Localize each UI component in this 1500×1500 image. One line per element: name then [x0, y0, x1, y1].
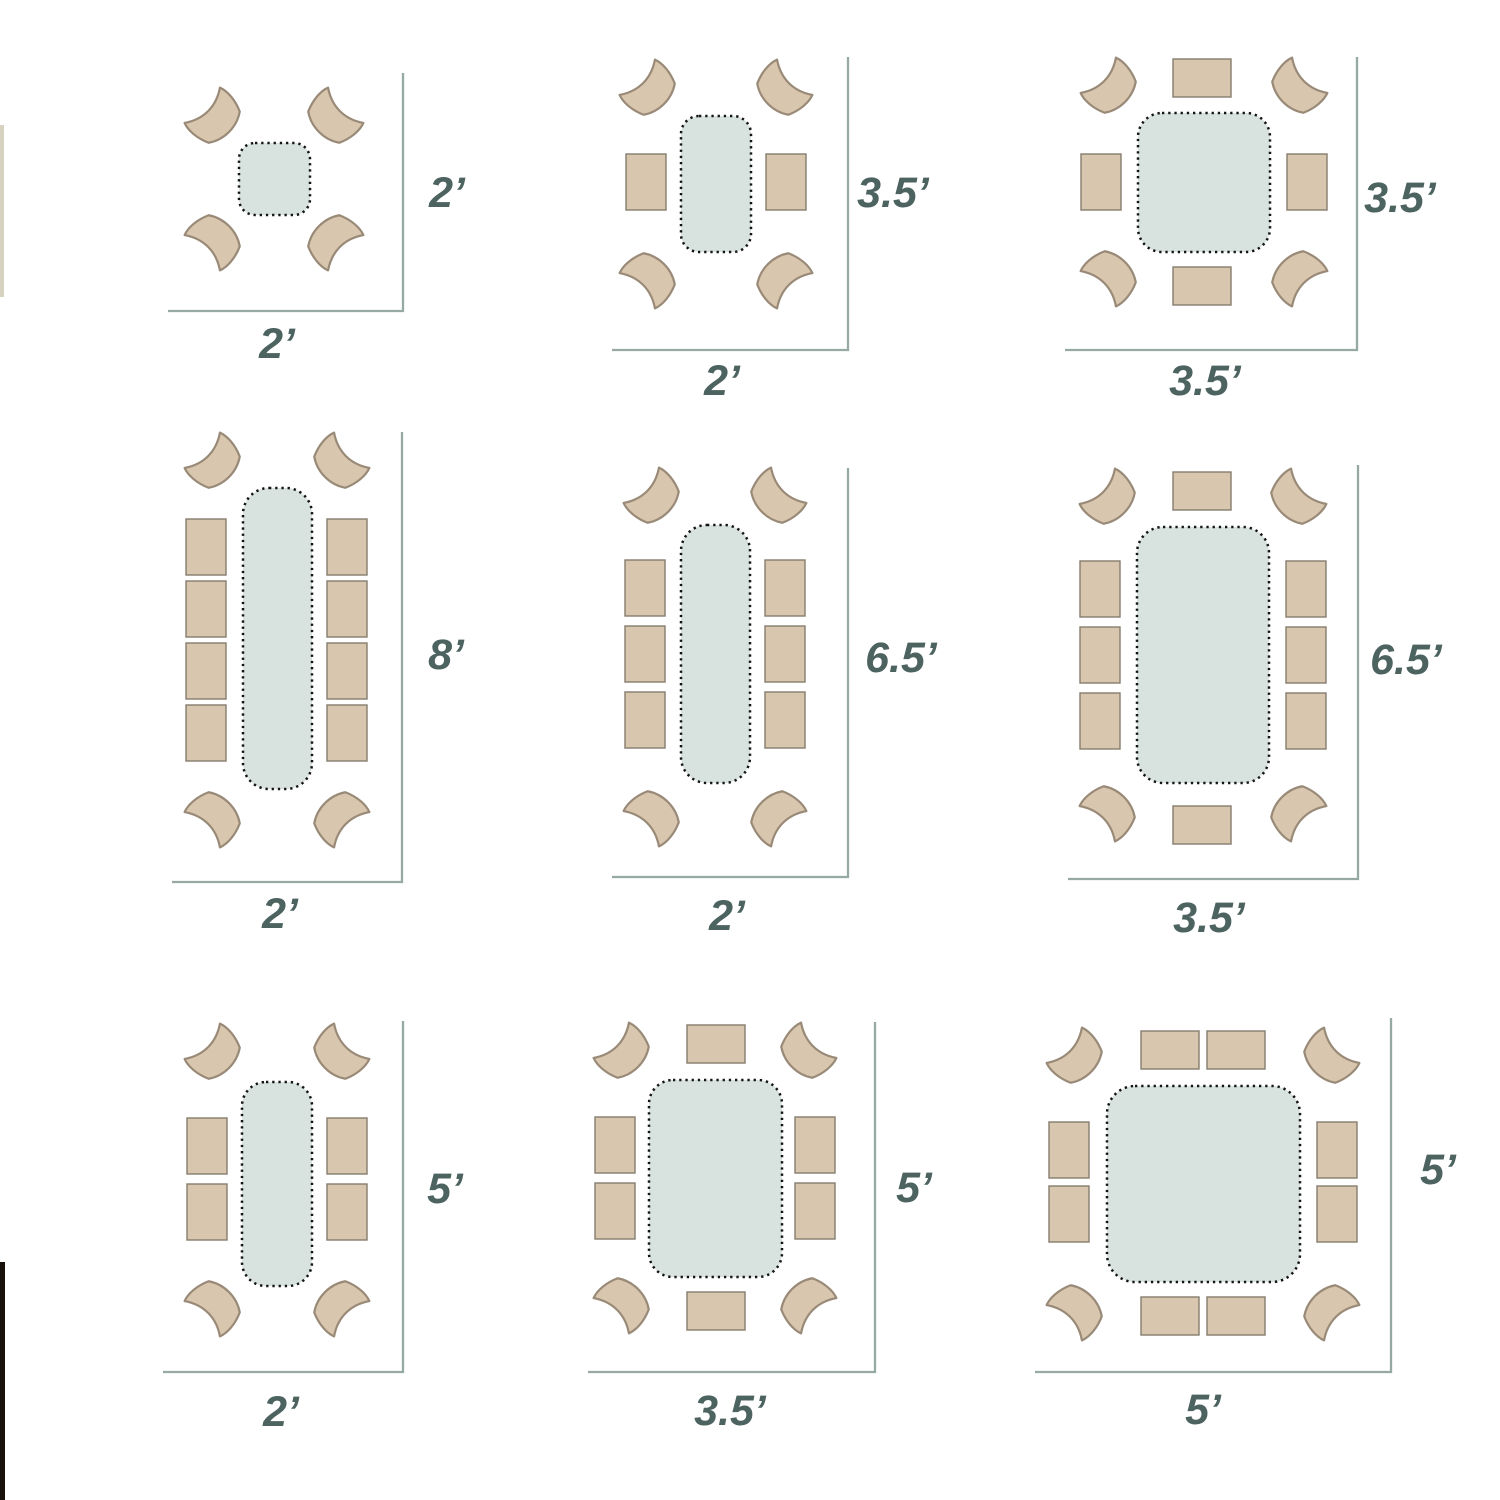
side-chair — [1317, 1186, 1357, 1242]
side-chair — [595, 1117, 635, 1173]
table — [1137, 527, 1269, 783]
corner-chair — [622, 783, 686, 847]
corner-chair — [1079, 243, 1143, 307]
side-chair — [625, 626, 665, 682]
width-label: 2’ — [708, 892, 746, 940]
corner-chair — [183, 1273, 247, 1337]
side-chair — [1317, 1122, 1357, 1178]
corner-chair — [749, 245, 813, 309]
side-chair — [1173, 59, 1231, 97]
corner-chair — [1045, 1277, 1109, 1341]
table — [1138, 113, 1270, 252]
table — [681, 525, 750, 783]
side-chair — [1173, 806, 1231, 844]
corner-chair — [592, 1270, 656, 1334]
side-chair — [626, 154, 666, 210]
table — [649, 1080, 782, 1277]
corner-chair — [773, 1270, 837, 1334]
side-chair — [186, 705, 226, 761]
side-chair — [595, 1183, 635, 1239]
side-chair — [1141, 1297, 1199, 1335]
side-chair — [327, 519, 367, 575]
layout-2ft-x-8ft: 8’ 2’ — [172, 431, 465, 938]
corner-chair — [300, 86, 364, 150]
side-chair — [1080, 561, 1120, 617]
side-chair — [1049, 1122, 1089, 1178]
width-label: 2’ — [262, 1388, 300, 1436]
corner-chair — [306, 431, 370, 495]
height-label: 6.5’ — [1370, 636, 1443, 684]
side-chair — [766, 154, 806, 210]
width-label: 2’ — [703, 357, 741, 405]
layout-3_5ft-x-6_5ft: 6.5’ 3.5’ — [1068, 465, 1443, 942]
corner-chair — [183, 86, 247, 150]
side-chair — [765, 626, 805, 682]
side-chair — [1141, 1031, 1199, 1069]
corner-chair — [306, 784, 370, 848]
corner-chair — [183, 784, 247, 848]
side-chair — [1286, 561, 1326, 617]
corner-chair — [1263, 467, 1327, 531]
corner-chair — [1296, 1277, 1360, 1341]
corner-chair — [618, 58, 682, 122]
side-chair — [687, 1292, 745, 1330]
height-label: 2’ — [428, 169, 466, 217]
corner-chair — [1078, 778, 1142, 842]
side-chair — [1173, 267, 1231, 305]
corner-chair — [183, 1022, 247, 1086]
layout-3_5ft-x-3_5ft: 3.5’ 3.5’ — [1065, 56, 1437, 405]
layout-2ft-x-6_5ft: 6.5’ 2’ — [612, 466, 938, 940]
side-chair — [1207, 1297, 1265, 1335]
side-chair — [187, 1118, 227, 1174]
corner-chair — [743, 783, 807, 847]
side-chair — [1286, 627, 1326, 683]
height-label: 5’ — [427, 1165, 464, 1213]
corner-chair — [1296, 1026, 1360, 1090]
corner-chair — [306, 1273, 370, 1337]
layout-5ft-x-5ft: 5’ 5’ — [1035, 1018, 1457, 1434]
side-chair — [186, 519, 226, 575]
height-label: 3.5’ — [857, 169, 930, 217]
table — [242, 1082, 312, 1286]
corner-chair — [1264, 56, 1328, 120]
layout-2ft-x-2ft: 2’ 2’ — [168, 73, 466, 368]
corner-chair — [773, 1021, 837, 1085]
side-chair — [625, 692, 665, 748]
side-chair — [687, 1025, 745, 1063]
table — [681, 116, 751, 252]
side-chair — [327, 705, 367, 761]
corner-chair — [592, 1021, 656, 1085]
corner-chair — [183, 207, 247, 271]
corner-chair — [622, 466, 686, 530]
width-label: 3.5’ — [1173, 894, 1246, 942]
corner-chair — [1045, 1026, 1109, 1090]
height-label: 8’ — [428, 631, 465, 679]
corner-chair — [306, 1022, 370, 1086]
side-chair — [625, 560, 665, 616]
side-chair — [327, 643, 367, 699]
corner-chair — [618, 245, 682, 309]
side-chair — [765, 560, 805, 616]
side-chair — [327, 581, 367, 637]
side-chair — [186, 581, 226, 637]
table — [1107, 1086, 1300, 1282]
corner-chair — [300, 207, 364, 271]
width-label: 5’ — [1185, 1386, 1222, 1434]
layout-2ft-x-5ft: 5’ 2’ — [163, 1021, 464, 1436]
side-chair — [327, 1118, 367, 1174]
width-label: 2’ — [261, 890, 299, 938]
side-chair — [1081, 154, 1121, 210]
side-chair — [187, 1184, 227, 1240]
height-label: 6.5’ — [865, 634, 938, 682]
table — [239, 143, 310, 215]
corner-chair — [1264, 243, 1328, 307]
height-label: 5’ — [896, 1164, 933, 1212]
side-chair — [1080, 627, 1120, 683]
side-chair — [327, 1184, 367, 1240]
corner-chair — [183, 431, 247, 495]
side-chair — [1287, 154, 1327, 210]
corner-chair — [1079, 56, 1143, 120]
width-label: 2’ — [258, 320, 296, 368]
corner-chair — [1263, 778, 1327, 842]
side-chair — [765, 692, 805, 748]
seating-diagram-canvas: 2’ 2’ 3.5’ 2’ 3.5’ — [0, 0, 1500, 1500]
corner-chair — [743, 466, 807, 530]
side-chair — [186, 643, 226, 699]
width-label: 3.5’ — [1169, 357, 1242, 405]
height-label: 5’ — [1420, 1146, 1457, 1194]
side-chair — [795, 1117, 835, 1173]
side-chair — [1049, 1186, 1089, 1242]
layout-3_5ft-x-5ft: 5’ 3.5’ — [588, 1021, 933, 1435]
seating-diagram: 2’ 2’ 3.5’ 2’ 3.5’ — [0, 0, 1500, 1500]
side-chair — [1286, 693, 1326, 749]
corner-chair — [1078, 467, 1142, 531]
side-chair — [1173, 472, 1231, 510]
side-chair — [1207, 1031, 1265, 1069]
height-label: 3.5’ — [1364, 174, 1437, 222]
width-label: 3.5’ — [694, 1387, 767, 1435]
layout-2ft-x-3_5ft: 3.5’ 2’ — [612, 57, 930, 405]
side-chair — [795, 1183, 835, 1239]
side-chair — [1080, 693, 1120, 749]
table — [243, 488, 312, 789]
corner-chair — [749, 58, 813, 122]
